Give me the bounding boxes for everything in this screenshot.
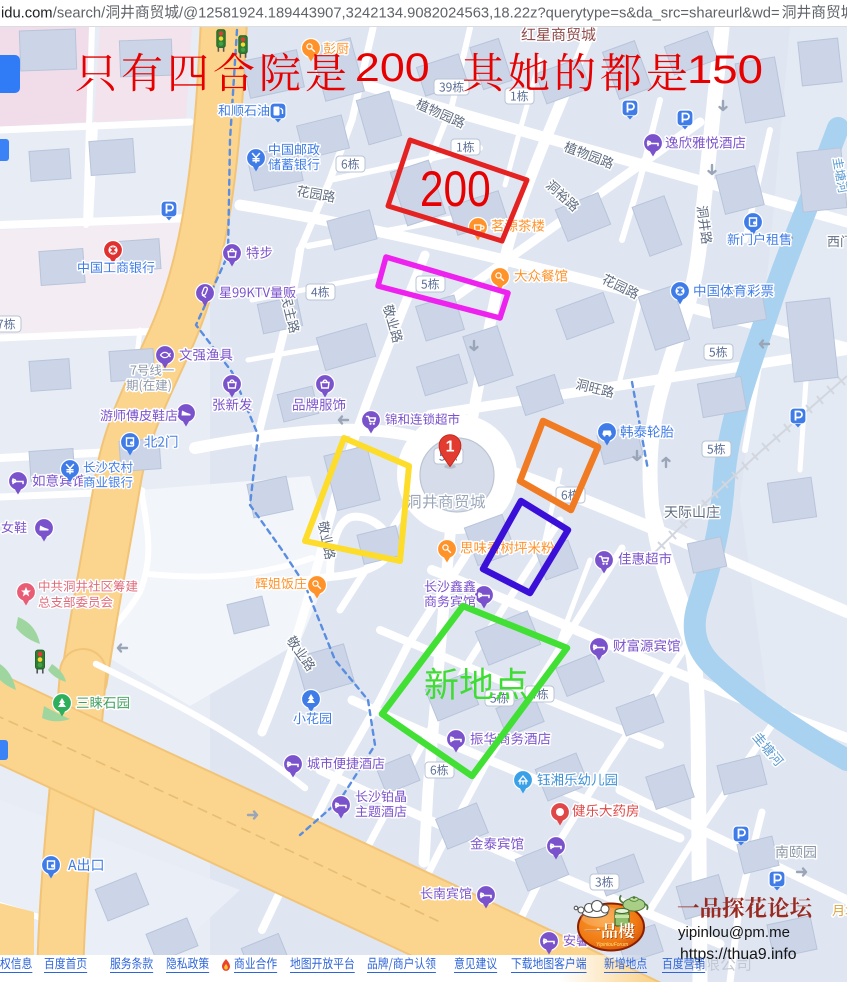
- svg-text:1: 1: [446, 439, 455, 456]
- svg-text:/search/: /search/: [53, 4, 106, 21]
- svg-text:https://thua9.info: https://thua9.info: [680, 946, 797, 963]
- svg-text:200: 200: [420, 161, 491, 217]
- svg-text:yipinlou@pm.me: yipinlou@pm.me: [678, 924, 790, 941]
- svg-text:idu.com: idu.com: [1, 4, 53, 21]
- svg-text:200: 200: [355, 45, 430, 89]
- svg-text:/@12581924.189443907,3242134.9: /@12581924.189443907,3242134.9082024563,…: [179, 4, 780, 21]
- svg-text:150: 150: [687, 48, 763, 93]
- svg-text:YipinlouForum: YipinlouForum: [596, 942, 628, 948]
